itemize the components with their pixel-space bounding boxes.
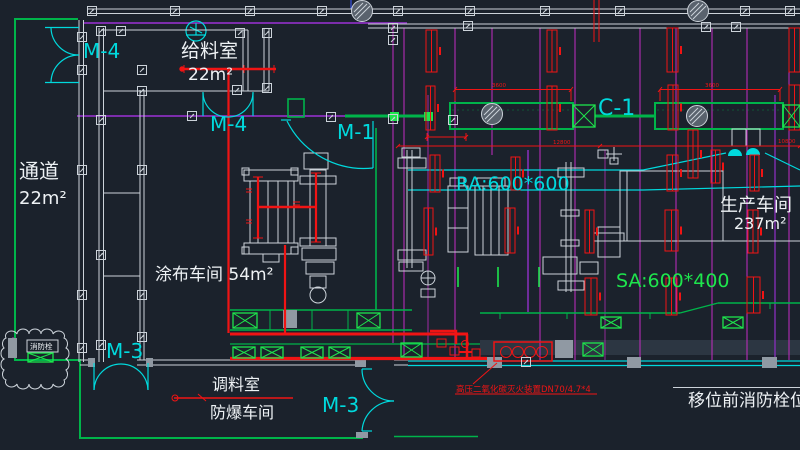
supply-duct bbox=[655, 103, 783, 129]
cad-viewport[interactable]: M-4 给料室 22m² M-4 M-1 通道 22m² C-1 RA:600*… bbox=[0, 0, 800, 450]
label-room-coating: 涂布车间 54m² bbox=[155, 265, 273, 285]
doors bbox=[45, 28, 394, 432]
dome-light-icon bbox=[728, 149, 742, 156]
label-room-mixing: 调料室 bbox=[212, 375, 260, 394]
label-room-production-area: 237m² bbox=[734, 214, 787, 233]
label-room-corridor: 通道 bbox=[19, 159, 59, 183]
label-dim-span1: 12800 bbox=[553, 140, 571, 146]
damper-icon bbox=[424, 112, 433, 121]
label-door-m4-mid: M-4 bbox=[210, 112, 247, 136]
labels: M-4 给料室 22m² M-4 M-1 通道 22m² C-1 RA:600*… bbox=[19, 39, 800, 422]
label-dim-duct1: 3600 bbox=[492, 83, 506, 89]
label-room-corridor-area: 22m² bbox=[19, 188, 67, 209]
label-note-hydrant: 移位前消防栓位置 bbox=[688, 391, 800, 411]
dome-light-icon bbox=[746, 148, 760, 155]
fan-icon bbox=[186, 21, 206, 41]
label-room-production: 生产车间 bbox=[720, 195, 792, 216]
label-room-feed-area: 22m² bbox=[188, 65, 233, 85]
door-m3-mid-icon bbox=[362, 369, 394, 431]
label-cloud-hydrant: 消防栓 bbox=[30, 341, 53, 351]
co2-leader-line bbox=[473, 363, 497, 384]
label-room-explosion: 防爆车间 bbox=[210, 403, 274, 422]
storage-racks bbox=[424, 28, 800, 315]
label-door-m3-left: M-3 bbox=[106, 339, 143, 363]
label-door-m1: M-1 bbox=[337, 120, 374, 144]
cad-canvas[interactable]: M-4 给料室 22m² M-4 M-1 通道 22m² C-1 RA:600*… bbox=[0, 0, 800, 450]
label-door-m4-top: M-4 bbox=[83, 39, 120, 63]
label-note-co2: 高压二氧化碳灭火装置DN70/4.7*4 bbox=[456, 384, 591, 395]
label-door-m3-mid: M-3 bbox=[322, 393, 359, 417]
label-dim-span2: 10800 bbox=[778, 139, 796, 145]
door-m3-left-icon bbox=[94, 363, 148, 390]
label-room-feed: 给料室 bbox=[181, 40, 238, 62]
label-dim-duct2: 3600 bbox=[705, 83, 719, 89]
label-grid-c1: C-1 bbox=[598, 96, 635, 121]
label-duct-ra: RA:600*600 bbox=[456, 173, 570, 195]
label-duct-sa: SA:600*400 bbox=[616, 270, 730, 292]
supply-duct bbox=[450, 103, 573, 129]
door-m4-top-icon bbox=[45, 28, 79, 83]
